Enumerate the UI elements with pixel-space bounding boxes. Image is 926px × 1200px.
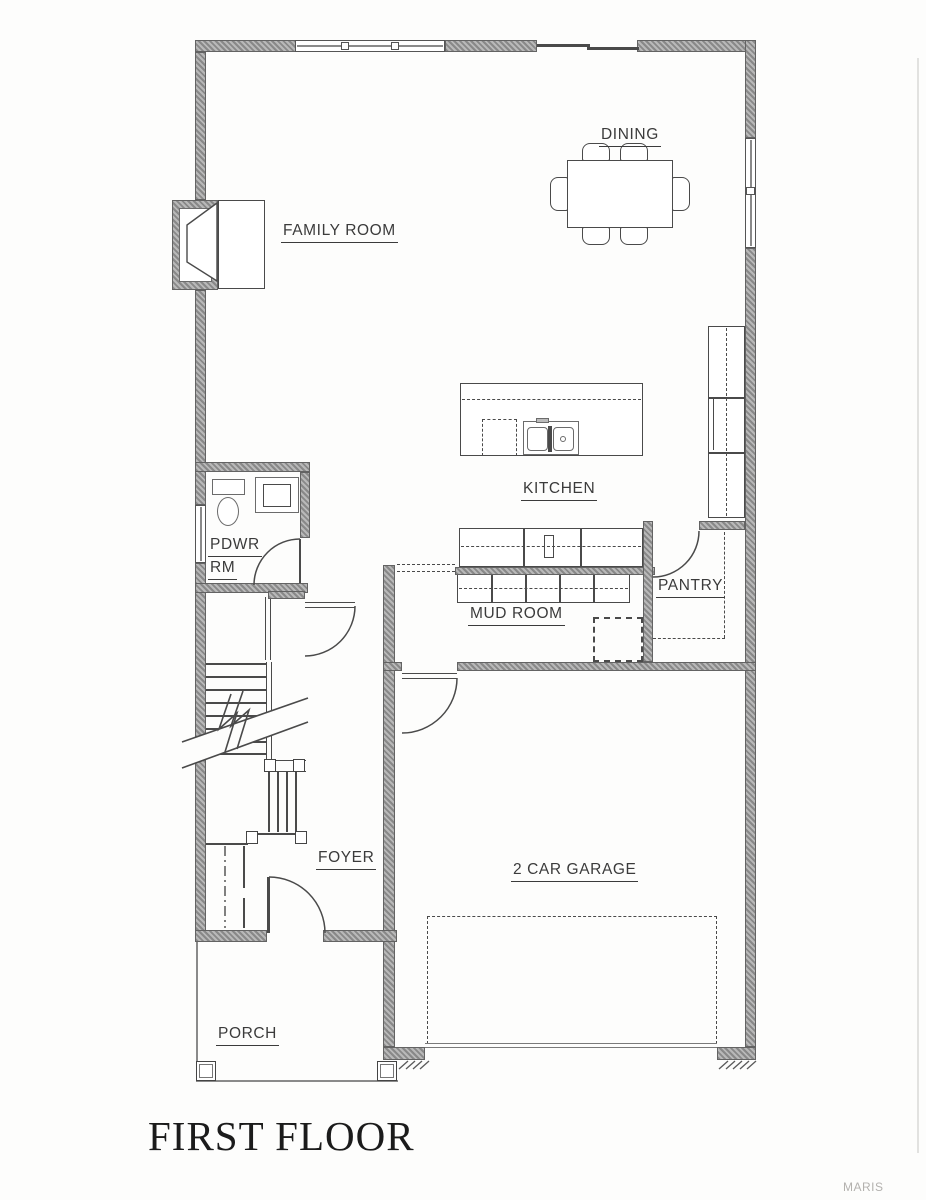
- room-label-pdwr: PDWR: [208, 537, 262, 557]
- room-label-foyer: FOYER: [316, 850, 376, 870]
- stair-break-mask: [182, 698, 308, 768]
- room-label-rm: RM: [208, 560, 237, 580]
- first-floor-plan: DINING FAMILY ROOM KITCHEN PDWR RM MUD R…: [0, 0, 926, 1200]
- room-label-family: FAMILY ROOM: [281, 223, 398, 243]
- fireplace-firebox: [187, 203, 217, 281]
- room-label-garage: 2 CAR GARAGE: [511, 862, 638, 882]
- room-label-kitchen: KITCHEN: [521, 481, 597, 501]
- room-label-porch: PORCH: [216, 1026, 279, 1046]
- ground-hatch-left: [399, 1061, 429, 1069]
- page-title: FIRST FLOOR: [148, 1112, 415, 1160]
- front-door-swing: [269, 877, 325, 933]
- garage-entry-door-swing: [402, 678, 457, 733]
- stair-room-door-swing: [305, 606, 355, 656]
- room-label-pantry: PANTRY: [656, 578, 725, 598]
- watermark: MARIS: [843, 1180, 884, 1194]
- ground-hatch-right: [719, 1061, 756, 1069]
- room-label-dining: DINING: [599, 127, 661, 147]
- room-label-mudroom: MUD ROOM: [468, 606, 565, 626]
- annotations-layer: [0, 0, 926, 1200]
- pantry-door-swing: [653, 531, 699, 577]
